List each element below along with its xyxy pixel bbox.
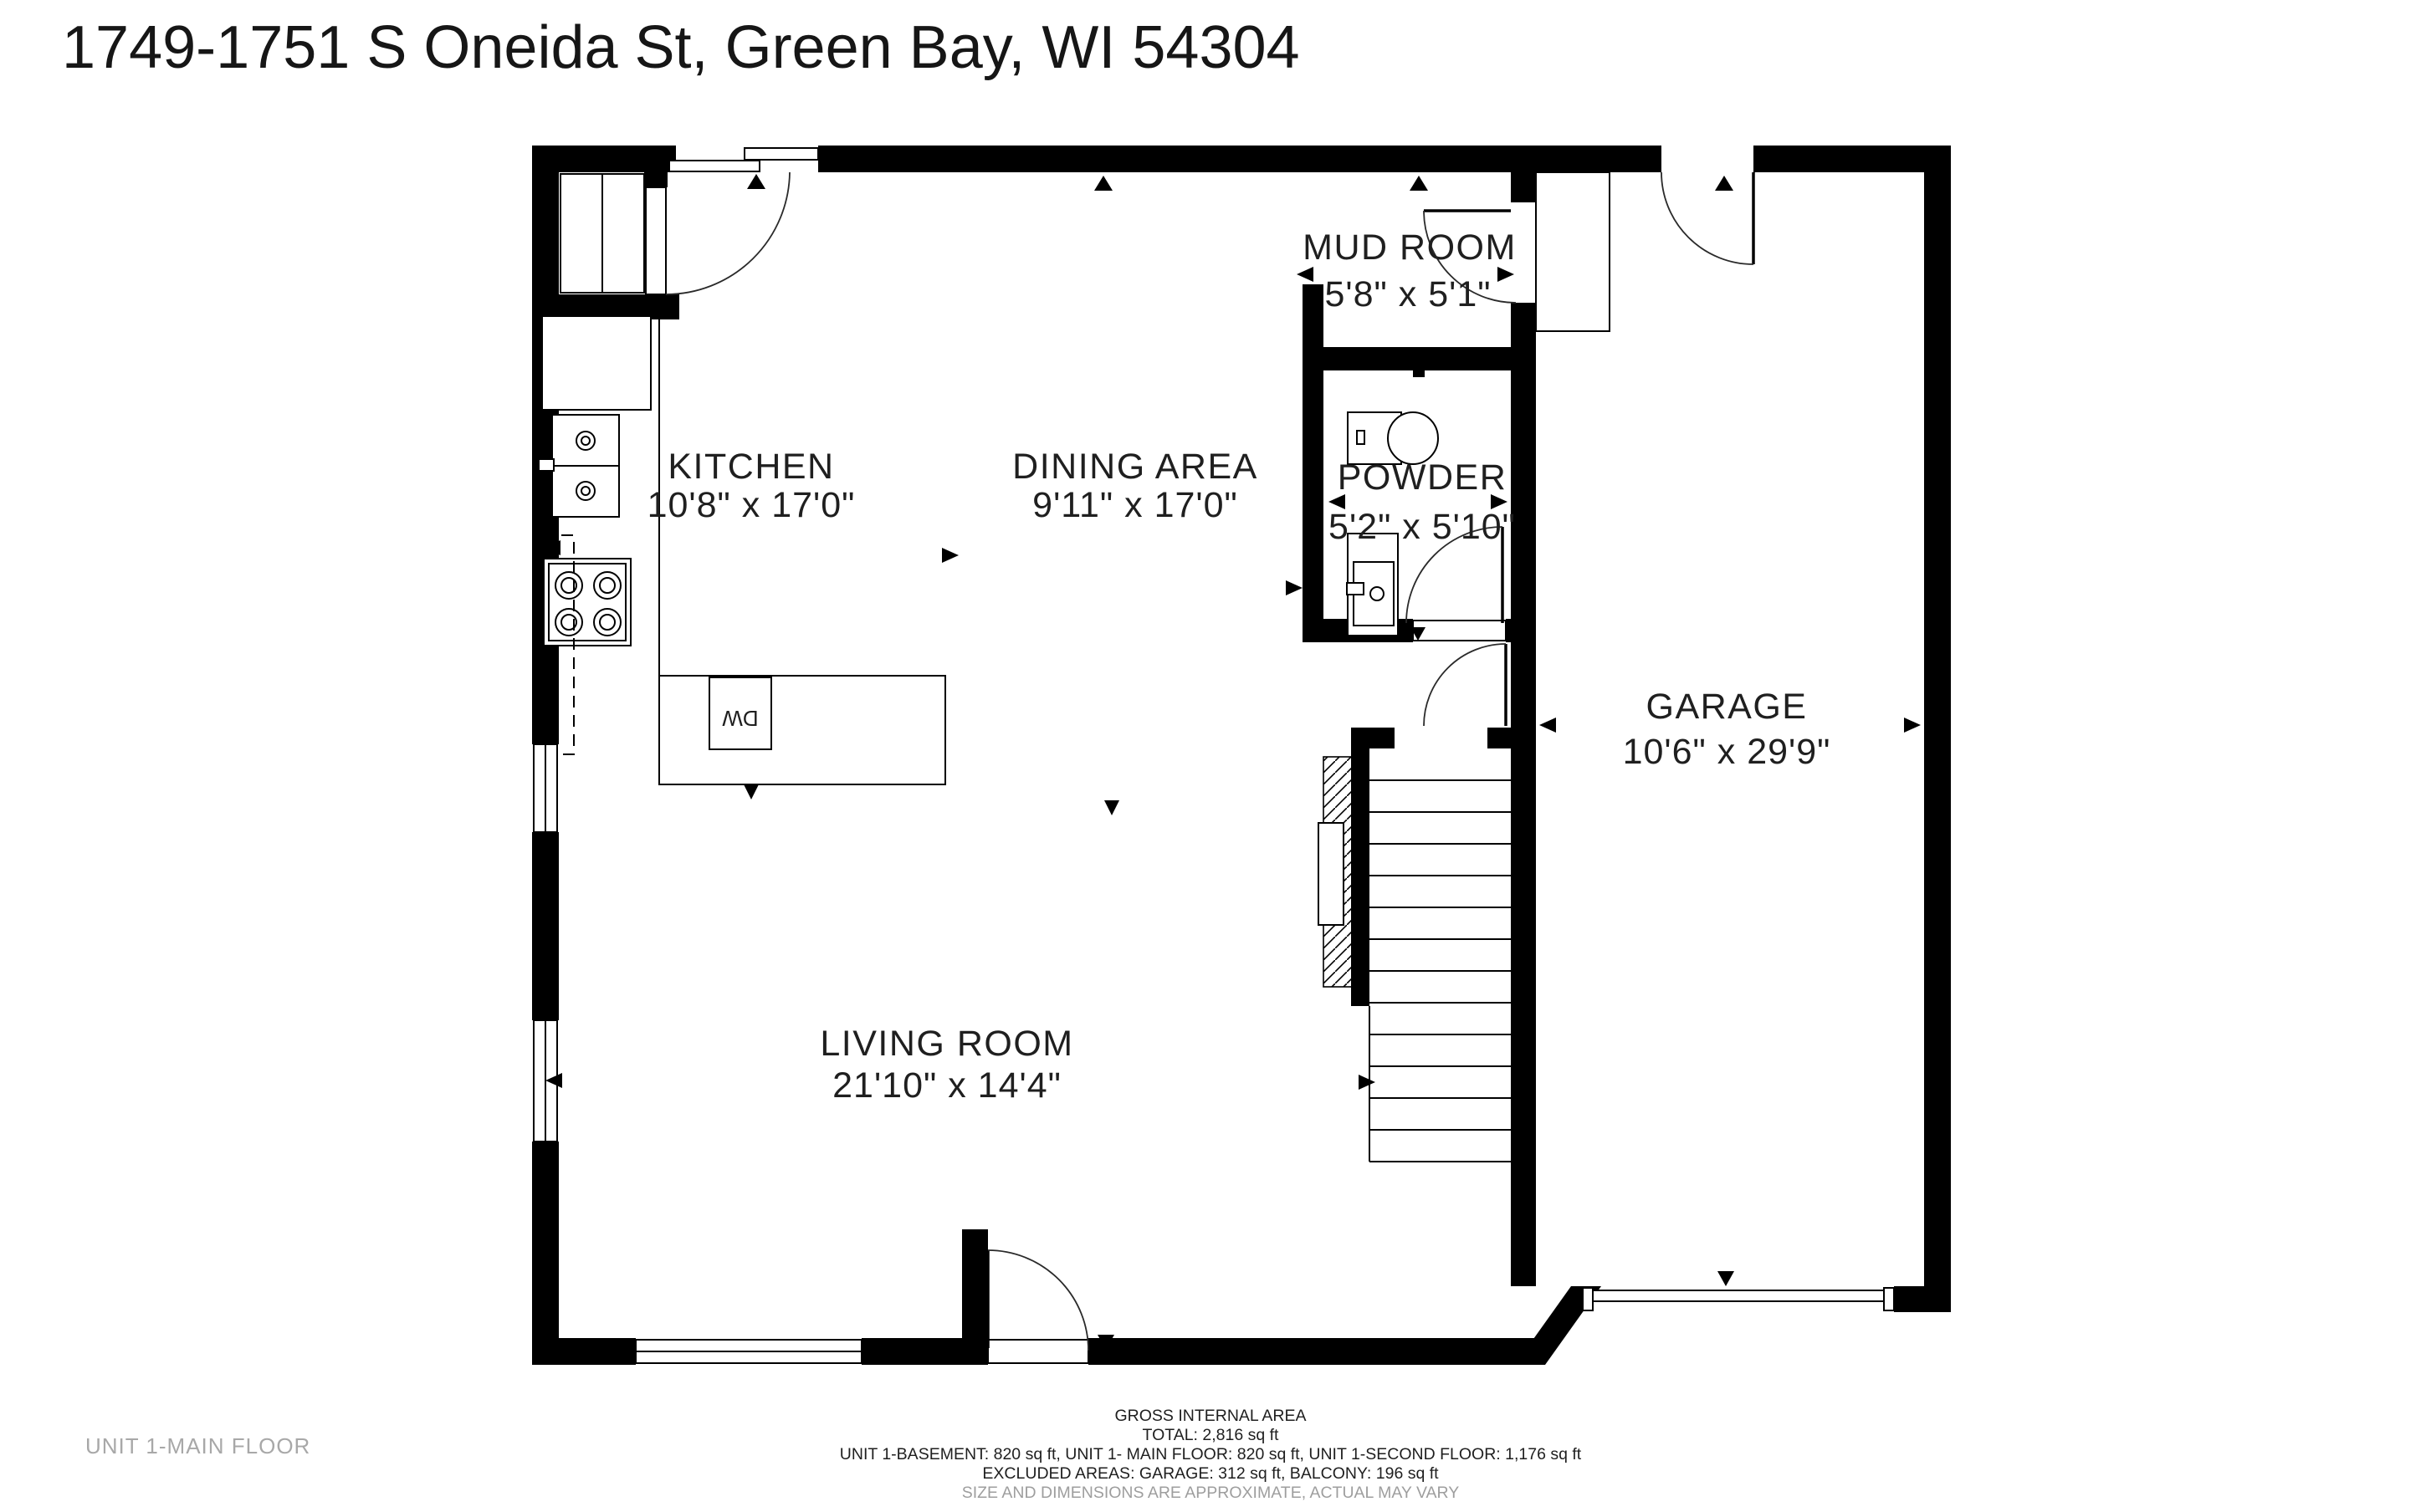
room-label-living: LIVING ROOM <box>820 1024 1073 1064</box>
kitchen-island <box>659 676 945 784</box>
chimney-inset <box>1318 823 1344 925</box>
wall <box>1351 728 1395 748</box>
wall-tick <box>1413 370 1425 377</box>
sink-faucet <box>539 459 554 471</box>
arrow-right-icon <box>942 548 959 563</box>
gross-area-heading: GROSS INTERNAL AREA <box>0 1407 2421 1426</box>
wall <box>1571 1286 1583 1312</box>
wall <box>1924 146 1951 1312</box>
wall <box>532 832 559 1020</box>
toilet-bowl <box>1388 412 1438 464</box>
wall <box>1753 146 1951 172</box>
door-swing-arc <box>1424 644 1506 726</box>
arrow-up-icon <box>1410 176 1428 191</box>
room-label-dining: DINING AREA <box>1012 447 1258 487</box>
wall <box>1088 1338 1545 1365</box>
door-threshold <box>988 1340 1088 1363</box>
door-swing-arc <box>988 1250 1088 1351</box>
dishwasher-label: DW <box>722 706 759 731</box>
door-leaf <box>646 187 666 294</box>
room-label-powder: POWDER <box>1338 457 1507 498</box>
wall <box>644 172 668 187</box>
arrow-right-icon <box>1359 1075 1375 1090</box>
room-labels: KITCHEN 10'8" x 17'0" DINING AREA 9'11" … <box>647 227 1831 1106</box>
garage-door <box>1583 1288 1894 1310</box>
excluded-areas: EXCLUDED AREAS: GARAGE: 312 sq ft, BALCO… <box>0 1464 2421 1484</box>
arrow-down-icon <box>1717 1271 1734 1286</box>
wall <box>532 1338 636 1365</box>
unit-areas: UNIT 1-BASEMENT: 820 sq ft, UNIT 1- MAIN… <box>0 1445 2421 1464</box>
room-dims-kitchen: 10'8" x 17'0" <box>647 485 856 525</box>
room-label-mudroom: MUD ROOM <box>1303 227 1517 268</box>
arrow-right-icon <box>1904 718 1921 733</box>
arrow-right-icon <box>1497 267 1514 282</box>
staircase <box>1318 757 1511 1162</box>
disclaimer: SIZE AND DIMENSIONS ARE APPROXIMATE, ACT… <box>0 1484 2421 1503</box>
room-label-garage: GARAGE <box>1646 687 1808 727</box>
wall <box>862 1338 988 1365</box>
door-threshold <box>1413 621 1506 641</box>
wall <box>818 146 1661 172</box>
arrow-up-icon <box>1715 176 1733 191</box>
slider-panel <box>669 161 760 171</box>
toilet-tank-button <box>1357 431 1364 444</box>
arrow-left-icon <box>1297 267 1313 282</box>
arrow-left-icon <box>1539 718 1556 733</box>
wall <box>1511 172 1536 202</box>
garage-storage <box>1536 172 1610 331</box>
room-dims-powder: 5'2" x 5'10" <box>1328 507 1516 547</box>
garage-door-jamb <box>1884 1288 1894 1310</box>
room-dims-garage: 10'6" x 29'9" <box>1623 732 1831 772</box>
wall <box>532 1142 559 1365</box>
arrow-down-icon <box>744 784 759 799</box>
arrow-up-icon <box>1094 176 1113 191</box>
garage-door-panel <box>1593 1290 1884 1301</box>
wall <box>1487 728 1536 748</box>
floorplan-page: 1749-1751 S Oneida St, Green Bay, WI 543… <box>0 0 2421 1512</box>
arrow-up-icon <box>747 174 765 189</box>
room-dims-living: 21'10" x 14'4" <box>832 1065 1062 1106</box>
floor-plan-drawing: DW <box>0 0 2421 1512</box>
room-dims-dining: 9'11" x 17'0" <box>1032 485 1238 525</box>
wall <box>1511 303 1536 1286</box>
door-swing-arc <box>666 172 790 294</box>
stove <box>544 559 631 646</box>
wall <box>962 1229 988 1340</box>
area-summary: GROSS INTERNAL AREA TOTAL: 2,816 sq ft U… <box>0 1407 2421 1503</box>
slider-panel <box>745 148 818 160</box>
wall <box>1303 284 1323 642</box>
floor-name: UNIT 1-MAIN FLOOR <box>85 1433 310 1459</box>
door-swing-arc <box>1661 172 1753 264</box>
wall <box>1303 347 1511 370</box>
refrigerator <box>542 316 651 410</box>
garage-door-jamb <box>1583 1288 1593 1310</box>
total-area: TOTAL: 2,816 sq ft <box>0 1426 2421 1445</box>
room-dims-mudroom: 5'8" x 5'1" <box>1325 274 1492 314</box>
arrow-right-icon <box>1286 580 1303 595</box>
arrow-down-icon <box>1104 800 1119 815</box>
room-label-kitchen: KITCHEN <box>668 447 834 487</box>
vanity-faucet <box>1347 583 1364 595</box>
